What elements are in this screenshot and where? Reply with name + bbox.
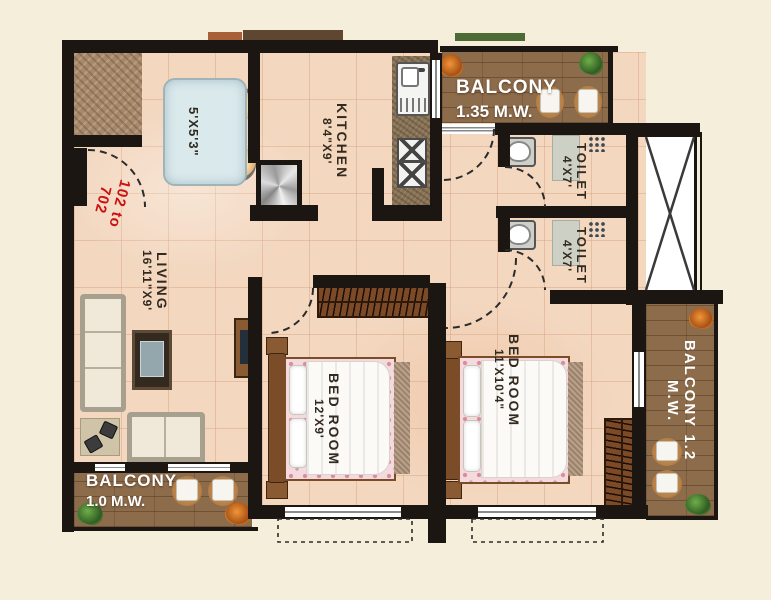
wardrobe — [317, 286, 431, 318]
plant-icon — [580, 52, 602, 74]
pillow-icon — [463, 365, 481, 417]
sofa-small — [127, 412, 205, 465]
wall-segment — [248, 277, 262, 519]
sofa-large — [80, 294, 126, 412]
wall-segment — [248, 53, 260, 163]
bedroom-2-label: BED ROOM 11'X10'4" — [492, 328, 522, 432]
wall-segment — [62, 135, 142, 147]
bedroom-1-label: BED ROOM 12'X9' — [312, 360, 342, 478]
floor-plan: 5'X5'3" — [0, 0, 771, 600]
coffee-table-glass — [140, 341, 164, 377]
pillow-icon — [289, 365, 307, 415]
projection-outline — [472, 519, 603, 542]
wall-segment — [62, 40, 438, 53]
corner-table-set — [80, 418, 120, 456]
sink-bowl-icon — [401, 67, 419, 87]
living-label: LIVING 16'11"X9' — [140, 225, 170, 337]
wall-segment — [495, 123, 638, 135]
balcony-chair-icon — [574, 86, 602, 118]
plant-icon — [440, 54, 462, 76]
toilet-2-label: TOILET 4'X7' — [560, 222, 589, 290]
stove-burner-icon — [397, 161, 427, 188]
wall-segment — [496, 206, 638, 218]
wall-segment — [638, 123, 700, 137]
bedside-rug — [394, 362, 410, 474]
balcony-right-label: BALCONY 1.2 M.W. — [664, 326, 698, 476]
sliding-door — [442, 124, 495, 134]
wall-segment — [498, 135, 510, 167]
duct-shaft — [646, 137, 694, 290]
sink-icon — [396, 62, 430, 116]
balcony-parapet — [440, 46, 618, 52]
balcony-parapet — [608, 52, 613, 125]
window — [285, 507, 401, 517]
coffee-table — [132, 330, 172, 390]
wall-segment — [550, 290, 638, 304]
toilet-1-label: TOILET 4'X7' — [560, 138, 589, 206]
dining-table — [163, 78, 247, 186]
dining-table-size-label: 5'X5'3" — [186, 92, 201, 172]
parapet-line — [700, 132, 702, 294]
shower-icon — [588, 136, 606, 152]
floor-foyer — [68, 52, 142, 137]
window — [432, 60, 440, 118]
wall-segment — [250, 205, 318, 221]
drainboard-icon — [400, 98, 426, 112]
wall-segment — [62, 40, 74, 532]
window — [168, 464, 230, 471]
kitchen-label: KITCHEN 8'4"X9' — [320, 85, 350, 197]
wall-segment — [626, 290, 723, 304]
wall-segment — [428, 505, 446, 543]
balcony-bottom-label: BALCONY 1.0 M.W. — [86, 470, 177, 512]
pillow-icon — [463, 420, 481, 472]
balcony-parapet — [646, 516, 718, 520]
shower-icon — [588, 221, 606, 237]
window — [634, 352, 644, 407]
window — [478, 507, 596, 517]
accent-chair-icon — [99, 420, 119, 439]
balcony-top-label: BALCONY 1.35 M.W. — [456, 76, 557, 123]
shaft-wall — [694, 137, 697, 290]
wall-segment — [428, 283, 446, 519]
accent-chair-icon — [84, 434, 104, 454]
plant-icon — [226, 502, 250, 524]
wall-segment — [313, 275, 430, 288]
wall-segment — [372, 168, 384, 208]
wall-segment — [632, 304, 646, 518]
pillow-icon — [289, 418, 307, 468]
plant-icon — [686, 494, 710, 514]
wall-segment — [498, 218, 510, 252]
bedside-rug — [568, 362, 583, 476]
door-leaf — [74, 148, 87, 206]
balcony-parapet — [714, 304, 718, 518]
projection-outline — [278, 519, 412, 542]
bedside-table — [266, 481, 288, 499]
hedge-strip — [455, 33, 525, 41]
plant-icon — [690, 308, 712, 328]
stove-burner-icon — [397, 138, 427, 162]
balcony-parapet — [62, 527, 258, 531]
